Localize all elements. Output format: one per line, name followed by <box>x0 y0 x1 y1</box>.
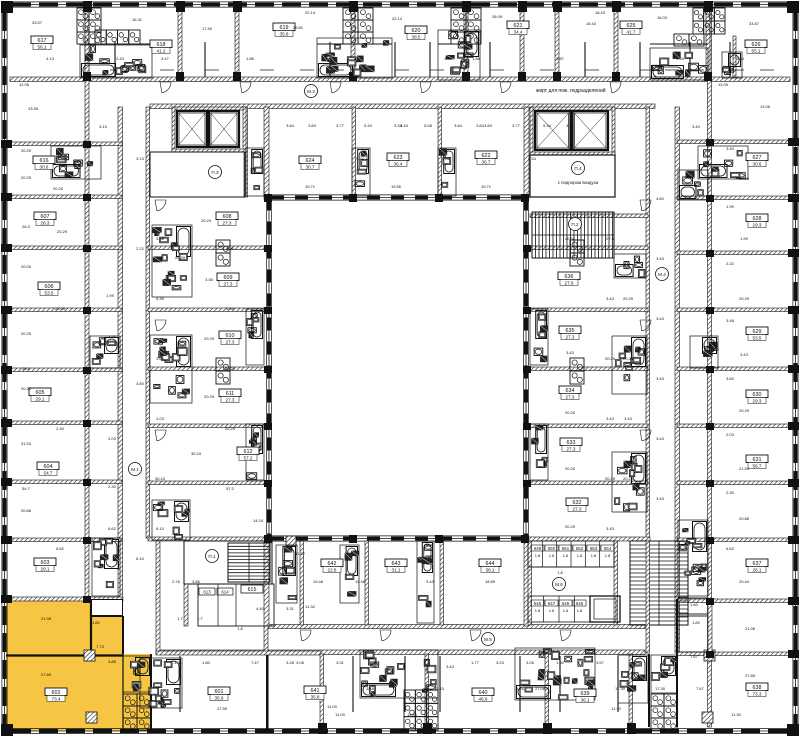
svg-text:2.30: 2.30 <box>108 484 117 489</box>
svg-text:3.43: 3.43 <box>656 496 665 501</box>
svg-text:3.34: 3.34 <box>400 123 409 128</box>
svg-text:3.43: 3.43 <box>606 526 615 531</box>
svg-text:26.1: 26.1 <box>753 568 762 573</box>
svg-text:3.28: 3.28 <box>286 660 295 665</box>
svg-text:615: 615 <box>248 587 257 593</box>
svg-text:11.00: 11.00 <box>327 704 337 709</box>
svg-text:2.76: 2.76 <box>172 579 181 584</box>
svg-text:1.99: 1.99 <box>106 293 115 298</box>
svg-text:18.89: 18.89 <box>485 579 496 584</box>
svg-text:11.32: 11.32 <box>305 604 315 609</box>
svg-text:3.34: 3.34 <box>566 123 575 128</box>
svg-text:20.29: 20.29 <box>565 466 576 471</box>
svg-text:645: 645 <box>576 601 584 606</box>
svg-text:642: 642 <box>328 561 337 567</box>
svg-text:1.99: 1.99 <box>726 204 735 209</box>
svg-text:631: 631 <box>753 457 762 463</box>
svg-text:М.5: М.5 <box>484 637 492 642</box>
svg-text:20.29: 20.29 <box>623 476 634 481</box>
svg-text:1.60: 1.60 <box>690 602 699 607</box>
svg-text:3.43: 3.43 <box>566 350 575 355</box>
svg-text:3.77: 3.77 <box>336 123 345 128</box>
svg-text:606: 606 <box>45 284 54 290</box>
svg-text:17.40: 17.40 <box>202 26 213 31</box>
svg-text:3.86: 3.86 <box>192 579 201 584</box>
svg-text:654: 654 <box>604 546 612 551</box>
svg-text:3.43: 3.43 <box>606 416 615 421</box>
svg-text:628: 628 <box>753 216 762 222</box>
svg-text:41.2: 41.2 <box>157 49 166 54</box>
svg-text:26.3: 26.3 <box>41 221 50 226</box>
svg-text:27.6: 27.6 <box>606 236 615 241</box>
svg-text:5.34: 5.34 <box>364 123 373 128</box>
svg-text:621: 621 <box>514 23 523 29</box>
svg-text:20.29: 20.29 <box>605 476 616 481</box>
svg-text:650: 650 <box>548 546 556 551</box>
svg-text:20.29: 20.29 <box>21 331 32 336</box>
svg-text:55.1: 55.1 <box>752 49 761 54</box>
svg-text:38.5: 38.5 <box>412 35 421 40</box>
svg-text:1.7: 1.7 <box>177 616 183 621</box>
svg-text:2.22: 2.22 <box>136 246 145 251</box>
svg-text:3.40: 3.40 <box>692 124 701 129</box>
svg-text:19.71: 19.71 <box>305 184 316 189</box>
svg-text:20.29: 20.29 <box>21 386 32 391</box>
svg-text:635: 635 <box>566 328 575 334</box>
svg-text:2.03: 2.03 <box>156 416 165 421</box>
svg-text:20.29: 20.29 <box>739 296 750 301</box>
svg-text:607: 607 <box>41 214 50 220</box>
svg-text:3.35: 3.35 <box>226 246 235 251</box>
svg-text:3.84: 3.84 <box>286 123 295 128</box>
svg-text:57.2: 57.2 <box>226 486 235 491</box>
svg-text:6.10: 6.10 <box>136 556 145 561</box>
svg-text:3.43: 3.43 <box>656 436 665 441</box>
svg-text:3.47: 3.47 <box>161 56 170 61</box>
svg-text:11.00: 11.00 <box>335 712 345 717</box>
svg-text:3.43: 3.43 <box>624 416 633 421</box>
svg-text:627: 627 <box>753 155 762 161</box>
svg-text:3.77: 3.77 <box>512 123 521 128</box>
svg-text:3.43: 3.43 <box>656 376 665 381</box>
svg-text:27.55: 27.55 <box>217 706 228 711</box>
svg-text:1.8: 1.8 <box>535 608 541 613</box>
svg-text:27.3: 27.3 <box>573 507 582 512</box>
svg-text:17.30: 17.30 <box>615 686 626 691</box>
svg-text:20.00: 20.00 <box>21 264 32 269</box>
svg-text:620: 620 <box>412 28 421 34</box>
svg-text:18.43: 18.43 <box>586 21 597 26</box>
svg-text:5.08: 5.08 <box>424 123 433 128</box>
svg-text:М.4: М.4 <box>658 272 666 277</box>
svg-text:3.08: 3.08 <box>296 660 305 665</box>
svg-text:629: 629 <box>753 329 762 335</box>
svg-text:П.2: П.2 <box>571 222 579 227</box>
svg-text:616: 616 <box>40 158 49 164</box>
svg-text:П.1: П.1 <box>208 554 216 559</box>
svg-text:30.6: 30.6 <box>40 165 49 170</box>
svg-text:623: 623 <box>394 155 403 161</box>
svg-text:1.8: 1.8 <box>549 553 555 558</box>
svg-text:2.30: 2.30 <box>56 426 65 431</box>
svg-text:1.99: 1.99 <box>740 236 749 241</box>
svg-text:604: 604 <box>44 464 53 470</box>
svg-text:2.30: 2.30 <box>726 490 735 495</box>
svg-text:20.29: 20.29 <box>623 356 634 361</box>
svg-text:21.53: 21.53 <box>739 466 750 471</box>
svg-text:20.29: 20.29 <box>225 366 236 371</box>
svg-text:36.7: 36.7 <box>482 160 491 165</box>
svg-text:619: 619 <box>280 25 289 31</box>
svg-text:638: 638 <box>753 685 762 691</box>
svg-text:644: 644 <box>486 561 495 567</box>
svg-text:3.54: 3.54 <box>676 56 685 61</box>
svg-text:11.25: 11.25 <box>407 712 417 717</box>
svg-text:3.43: 3.43 <box>740 352 749 357</box>
svg-text:1.8: 1.8 <box>563 608 569 613</box>
svg-text:3.84: 3.84 <box>308 123 317 128</box>
svg-text:1.8: 1.8 <box>577 608 583 613</box>
svg-text:625: 625 <box>627 23 636 29</box>
svg-text:П.3: П.3 <box>211 170 219 175</box>
svg-text:20.29: 20.29 <box>21 175 32 180</box>
svg-text:645: 645 <box>534 601 542 606</box>
svg-text:639: 639 <box>581 691 590 697</box>
svg-text:2.03: 2.03 <box>108 436 117 441</box>
svg-text:20.29: 20.29 <box>201 218 212 223</box>
svg-text:640: 640 <box>479 690 488 696</box>
svg-text:3.60: 3.60 <box>156 356 165 361</box>
svg-text:602: 602 <box>52 690 61 696</box>
svg-text:1.82: 1.82 <box>92 620 101 625</box>
svg-text:27.3: 27.3 <box>224 282 233 287</box>
svg-text:27.85: 27.85 <box>41 672 52 677</box>
svg-text:20.54: 20.54 <box>565 236 576 241</box>
svg-text:26.09: 26.09 <box>492 14 503 19</box>
svg-text:20.29: 20.29 <box>204 336 215 341</box>
svg-text:27.3: 27.3 <box>566 335 575 340</box>
svg-text:605: 605 <box>36 390 45 396</box>
svg-text:20.29: 20.29 <box>225 426 236 431</box>
svg-text:11.32: 11.32 <box>295 551 305 556</box>
svg-text:17.30: 17.30 <box>655 686 666 691</box>
svg-text:35.9: 35.9 <box>215 696 224 701</box>
svg-text:603: 603 <box>41 560 50 566</box>
svg-text:21.98: 21.98 <box>41 616 52 621</box>
svg-text:57.2: 57.2 <box>244 456 253 461</box>
svg-text:с подпором воздуха: с подпором воздуха <box>558 180 599 185</box>
svg-text:29.1: 29.1 <box>36 397 45 402</box>
svg-text:20.29: 20.29 <box>739 408 750 413</box>
svg-text:641: 641 <box>311 688 320 694</box>
svg-text:633: 633 <box>567 440 576 446</box>
svg-text:22.14: 22.14 <box>392 16 403 21</box>
svg-text:1.7: 1.7 <box>197 616 203 621</box>
svg-text:3.13: 3.13 <box>136 156 145 161</box>
svg-text:20.29: 20.29 <box>53 186 64 191</box>
svg-text:3.43: 3.43 <box>656 256 665 261</box>
svg-text:41.7: 41.7 <box>627 30 636 35</box>
svg-text:29.3: 29.3 <box>753 223 762 228</box>
svg-text:3.43: 3.43 <box>446 664 455 669</box>
svg-text:7.47: 7.47 <box>251 660 260 665</box>
svg-text:16.03: 16.03 <box>657 15 668 20</box>
svg-text:29.1: 29.1 <box>41 567 50 572</box>
svg-text:27.85: 27.85 <box>745 673 756 678</box>
svg-text:626: 626 <box>752 42 761 48</box>
svg-text:3.43: 3.43 <box>436 686 445 691</box>
svg-text:20.29: 20.29 <box>605 356 616 361</box>
svg-text:19.56: 19.56 <box>391 184 402 189</box>
svg-text:31.53: 31.53 <box>21 441 32 446</box>
svg-text:3.13: 3.13 <box>99 124 108 129</box>
svg-text:54.7: 54.7 <box>44 471 53 476</box>
svg-text:1.80: 1.80 <box>202 660 211 665</box>
svg-text:647: 647 <box>548 601 556 606</box>
svg-text:614: 614 <box>221 590 229 595</box>
svg-text:М.3: М.3 <box>307 89 315 94</box>
svg-text:1.8: 1.8 <box>563 553 569 558</box>
svg-text:27.3: 27.3 <box>566 395 575 400</box>
svg-text:М.6: М.6 <box>555 582 563 587</box>
svg-text:7.67: 7.67 <box>696 686 705 691</box>
svg-text:1.8: 1.8 <box>535 553 541 558</box>
svg-text:30.6: 30.6 <box>753 162 762 167</box>
svg-text:33.87: 33.87 <box>749 21 760 26</box>
svg-text:610: 610 <box>226 333 235 339</box>
svg-text:5.34: 5.34 <box>356 156 365 161</box>
svg-text:651: 651 <box>562 546 570 551</box>
svg-text:29.1: 29.1 <box>22 366 31 371</box>
svg-text:653: 653 <box>590 546 598 551</box>
svg-text:7.73: 7.73 <box>96 644 105 649</box>
svg-text:20.29: 20.29 <box>623 296 634 301</box>
svg-text:54.7: 54.7 <box>22 486 31 491</box>
svg-text:5.08: 5.08 <box>442 156 451 161</box>
svg-text:2.43: 2.43 <box>116 56 125 61</box>
svg-text:1.82: 1.82 <box>692 620 701 625</box>
svg-text:35.8: 35.8 <box>366 686 375 691</box>
svg-text:3.48: 3.48 <box>108 334 117 339</box>
svg-text:3.84: 3.84 <box>736 56 745 61</box>
svg-text:3.87: 3.87 <box>556 56 565 61</box>
svg-text:11.30: 11.30 <box>611 706 621 711</box>
svg-text:53.5: 53.5 <box>753 336 762 341</box>
svg-text:6.62: 6.62 <box>726 546 735 551</box>
svg-text:1.8: 1.8 <box>237 626 243 631</box>
svg-text:6.10: 6.10 <box>156 526 165 531</box>
svg-text:612: 612 <box>244 449 253 455</box>
svg-text:20.88: 20.88 <box>21 508 32 513</box>
svg-text:3.31: 3.31 <box>336 660 345 665</box>
svg-text:630: 630 <box>753 392 762 398</box>
svg-text:634: 634 <box>566 388 575 394</box>
svg-text:30.24: 30.24 <box>155 476 166 481</box>
svg-text:1.86: 1.86 <box>246 56 255 61</box>
svg-text:1.8: 1.8 <box>591 553 597 558</box>
svg-text:29.81: 29.81 <box>293 25 304 30</box>
svg-text:622: 622 <box>482 153 491 159</box>
svg-text:53.5: 53.5 <box>45 291 54 296</box>
svg-text:652: 652 <box>576 546 584 551</box>
svg-text:3.35: 3.35 <box>205 277 214 282</box>
svg-text:2.22: 2.22 <box>726 261 735 266</box>
svg-text:2.03: 2.03 <box>726 432 735 437</box>
svg-text:19.48: 19.48 <box>355 579 366 584</box>
svg-text:1.8: 1.8 <box>557 570 563 575</box>
svg-text:34.4: 34.4 <box>514 30 523 35</box>
svg-text:27.3: 27.3 <box>226 398 235 403</box>
svg-text:5.34: 5.34 <box>543 123 552 128</box>
svg-text:1.8: 1.8 <box>577 553 583 558</box>
svg-text:617: 617 <box>38 38 47 44</box>
svg-text:18.43: 18.43 <box>595 10 606 15</box>
svg-text:3.43: 3.43 <box>606 296 615 301</box>
svg-text:20.29: 20.29 <box>57 229 68 234</box>
svg-text:36.1: 36.1 <box>581 698 590 703</box>
svg-text:73.4: 73.4 <box>52 697 61 702</box>
svg-text:3.31: 3.31 <box>174 660 183 665</box>
svg-text:5.34: 5.34 <box>528 156 537 161</box>
svg-text:3.43: 3.43 <box>426 579 435 584</box>
svg-text:637: 637 <box>753 561 762 567</box>
svg-text:3.31: 3.31 <box>286 606 295 611</box>
svg-text:601: 601 <box>215 689 224 695</box>
svg-text:22.03: 22.03 <box>55 306 66 311</box>
svg-text:618: 618 <box>157 42 166 48</box>
svg-text:1.80: 1.80 <box>556 660 565 665</box>
svg-text:611: 611 <box>226 391 235 397</box>
svg-text:20.88: 20.88 <box>739 516 750 521</box>
svg-text:12.06: 12.06 <box>19 82 30 87</box>
svg-text:3.48: 3.48 <box>156 236 165 241</box>
svg-text:30.24: 30.24 <box>191 451 202 456</box>
svg-text:22.8: 22.8 <box>328 568 337 573</box>
svg-text:33.57: 33.57 <box>32 20 43 25</box>
svg-text:26.3: 26.3 <box>22 224 31 229</box>
svg-text:5.35: 5.35 <box>226 306 235 311</box>
svg-text:М.1: М.1 <box>131 467 139 472</box>
svg-text:1.86: 1.86 <box>472 56 481 61</box>
svg-text:3.88: 3.88 <box>108 659 117 664</box>
svg-text:3.23: 3.23 <box>496 660 505 665</box>
svg-text:13.06: 13.06 <box>760 104 771 109</box>
svg-text:624: 624 <box>306 158 315 164</box>
svg-text:11.30: 11.30 <box>731 712 741 717</box>
svg-text:30.7: 30.7 <box>306 165 315 170</box>
svg-text:632: 632 <box>573 500 582 506</box>
svg-text:3.26: 3.26 <box>526 660 535 665</box>
svg-text:20.29: 20.29 <box>175 255 186 260</box>
svg-text:3.84: 3.84 <box>476 123 485 128</box>
svg-text:35.8: 35.8 <box>311 695 320 700</box>
svg-text:27.3: 27.3 <box>226 340 235 345</box>
svg-text:3.26: 3.26 <box>516 686 525 691</box>
svg-text:3.84: 3.84 <box>484 123 493 128</box>
svg-text:27.3: 27.3 <box>223 221 232 226</box>
svg-text:4.60: 4.60 <box>656 196 665 201</box>
svg-text:1.77: 1.77 <box>471 660 480 665</box>
svg-text:613: 613 <box>203 590 211 595</box>
svg-text:19.48: 19.48 <box>313 579 324 584</box>
svg-text:13.55: 13.55 <box>28 106 39 111</box>
svg-text:27.08: 27.08 <box>535 686 546 691</box>
svg-text:20.29: 20.29 <box>565 524 576 529</box>
svg-text:6.82: 6.82 <box>56 546 65 551</box>
svg-text:20.44: 20.44 <box>739 579 750 584</box>
svg-text:3.43: 3.43 <box>656 316 665 321</box>
svg-text:646: 646 <box>562 601 570 606</box>
svg-text:608: 608 <box>223 214 232 220</box>
svg-text:643: 643 <box>392 561 401 567</box>
svg-text:56.1: 56.1 <box>38 45 47 50</box>
svg-text:6.62: 6.62 <box>108 526 117 531</box>
svg-text:7.67: 7.67 <box>690 654 699 659</box>
svg-text:73.3: 73.3 <box>753 692 762 697</box>
svg-text:649: 649 <box>534 546 542 551</box>
svg-text:3.60: 3.60 <box>726 376 735 381</box>
svg-text:20.29: 20.29 <box>204 394 215 399</box>
svg-text:56.7: 56.7 <box>753 464 762 469</box>
svg-text:36.1: 36.1 <box>486 568 495 573</box>
svg-text:636: 636 <box>565 274 574 280</box>
svg-text:1.8: 1.8 <box>549 608 555 613</box>
svg-text:3.84: 3.84 <box>454 123 463 128</box>
svg-text:14.24: 14.24 <box>253 518 264 523</box>
svg-text:3.60: 3.60 <box>136 381 145 386</box>
svg-text:4.13: 4.13 <box>46 56 55 61</box>
svg-text:22.14: 22.14 <box>305 10 316 15</box>
svg-text:3.40: 3.40 <box>726 146 735 151</box>
svg-text:609: 609 <box>224 275 233 281</box>
svg-text:жирт для пож. подразделений: жирт для пож. подразделений <box>536 87 606 94</box>
svg-text:4.40: 4.40 <box>256 606 265 611</box>
svg-text:16.31: 16.31 <box>132 17 143 22</box>
svg-text:3.48: 3.48 <box>726 318 735 323</box>
svg-text:35.8: 35.8 <box>280 32 289 37</box>
svg-text:31.1: 31.1 <box>392 568 401 573</box>
svg-text:20.29: 20.29 <box>21 148 32 153</box>
svg-text:19.71: 19.71 <box>481 184 492 189</box>
svg-text:П.4: П.4 <box>574 166 582 171</box>
svg-text:1.8: 1.8 <box>605 553 611 558</box>
svg-text:29.3: 29.3 <box>753 399 762 404</box>
svg-text:3.47: 3.47 <box>444 56 453 61</box>
svg-text:3.57: 3.57 <box>596 660 605 665</box>
svg-text:20.29: 20.29 <box>739 176 750 181</box>
svg-text:21.06: 21.06 <box>745 626 756 631</box>
svg-text:20.29: 20.29 <box>565 410 576 415</box>
svg-text:5.35: 5.35 <box>156 296 165 301</box>
svg-text:12.05: 12.05 <box>718 82 729 87</box>
svg-text:46.9: 46.9 <box>479 697 488 702</box>
svg-text:27.6: 27.6 <box>565 281 574 286</box>
svg-text:36.4: 36.4 <box>394 162 403 167</box>
svg-text:27.3: 27.3 <box>567 447 576 452</box>
